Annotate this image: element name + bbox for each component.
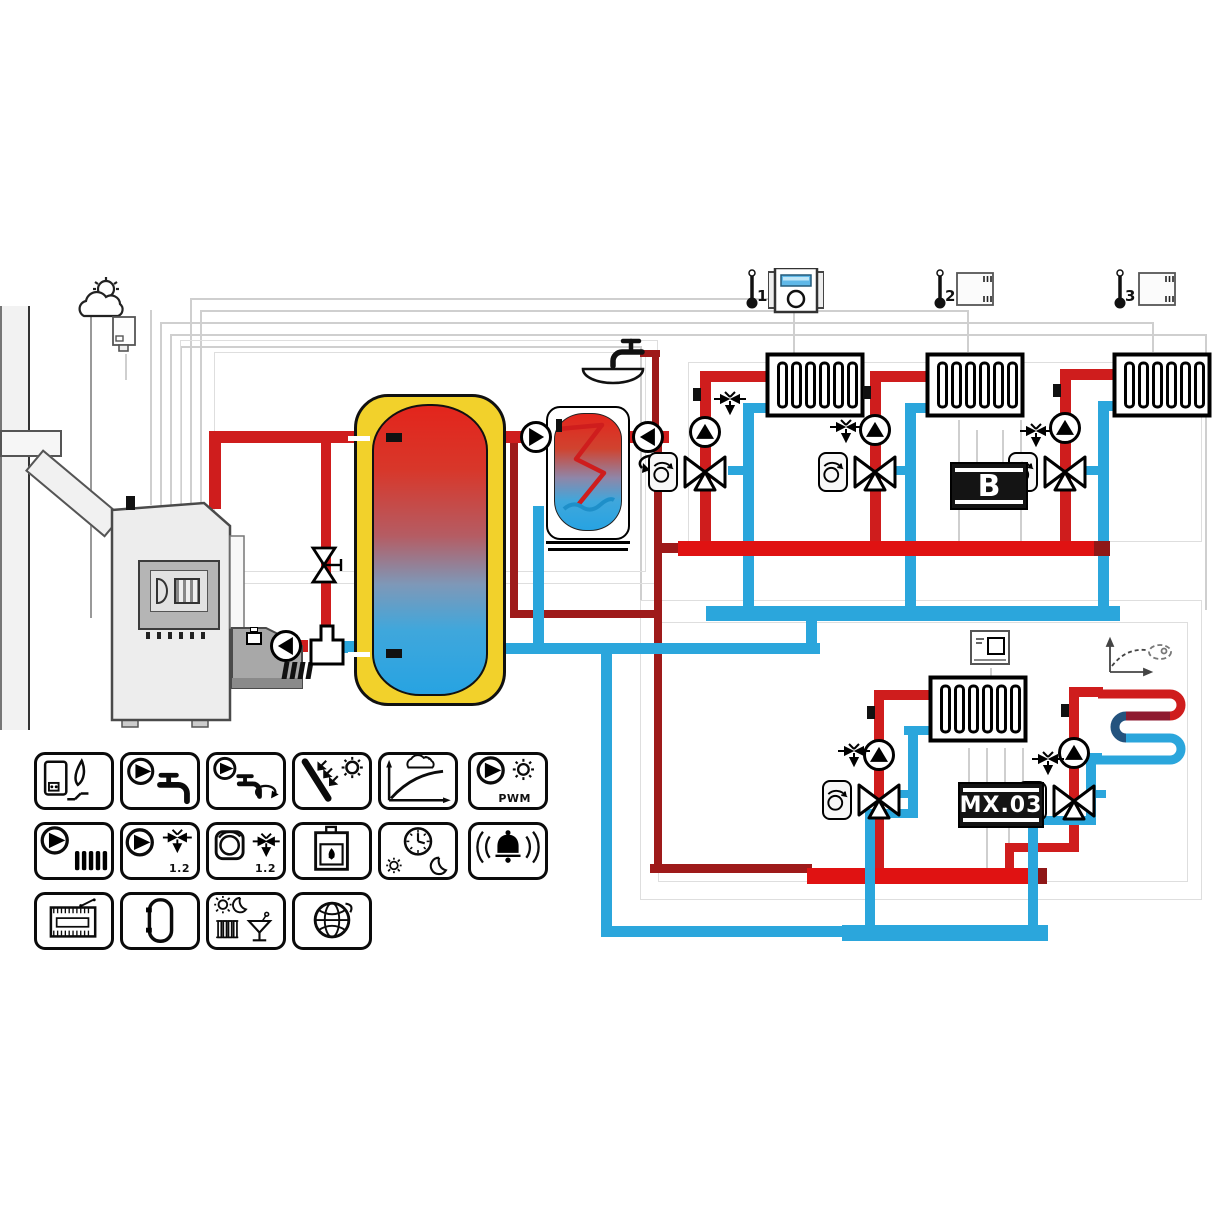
thermic-valve-tee xyxy=(303,618,345,666)
legend-storage-tank-icon[interactable] xyxy=(120,892,200,950)
legend-mixing-pump-icon[interactable]: 1.2 xyxy=(120,822,200,880)
wiring-line xyxy=(170,334,1205,336)
flue-duct-horizontal xyxy=(0,430,62,457)
hot-header-cap xyxy=(1094,541,1110,556)
wiring-line xyxy=(160,322,162,505)
cold-return-circuit4 xyxy=(865,809,875,929)
circuit1-mix-arrows-icon xyxy=(712,390,748,416)
hot-pipe-circuit4 xyxy=(874,690,934,700)
mixing-module-mx03[interactable]: MX.03 xyxy=(958,782,1044,828)
tank-sensor-nub xyxy=(386,433,402,442)
legend-pwm-label: PWM xyxy=(498,792,531,805)
radiator-circuit2 xyxy=(925,352,1025,418)
wiring-line xyxy=(200,310,967,312)
hot-pipe xyxy=(209,431,371,443)
tank-sensor-nub xyxy=(386,649,402,658)
legend-pwm-pump-icon[interactable]: PWM xyxy=(468,752,548,810)
legend-dhw-pump-icon[interactable] xyxy=(120,752,200,810)
cold-pipe xyxy=(601,650,612,934)
circuit4-actuator xyxy=(822,780,852,820)
legend-mixing-pump-label: 1.2 xyxy=(169,862,190,875)
legend-heating-pump-icon[interactable] xyxy=(34,822,114,880)
boiler-pump-icon xyxy=(270,630,302,662)
dhw-charge-pump-icon xyxy=(520,421,552,453)
shutoff-valve-icon xyxy=(310,544,346,586)
dhw-stand-line xyxy=(546,541,630,544)
legend-thermostat-valve-icon[interactable]: 1.2 xyxy=(206,822,286,880)
room-unit-1-label: 1 xyxy=(757,287,767,305)
circuit1-mixing-valve-icon xyxy=(682,452,728,492)
radiator-circuit1 xyxy=(765,352,865,418)
circuit1-actuator xyxy=(648,452,678,492)
boiler-terminals xyxy=(146,632,210,639)
module-stripe xyxy=(963,788,1039,792)
wiring-line xyxy=(190,298,793,300)
legend-heating-curve-icon[interactable] xyxy=(378,752,458,810)
pipe-sensor-nub xyxy=(863,386,871,399)
wall-edge-line xyxy=(90,308,92,618)
tank-port-notch xyxy=(348,652,370,657)
legend-alarm-icon[interactable] xyxy=(468,822,548,880)
outdoor-sensor-icon xyxy=(112,316,138,354)
pipe-sensor-nub xyxy=(693,388,701,401)
mixing-module-label: MX.03 xyxy=(960,793,1043,818)
cold-return-circuit3 xyxy=(1098,402,1109,616)
radiator-circuit4 xyxy=(928,675,1028,743)
hot-header-upper xyxy=(678,541,1108,556)
room-sensor-bottom-icon xyxy=(970,630,1012,668)
hot-pipe-circuit1 xyxy=(700,371,772,382)
room-controller-1[interactable] xyxy=(768,268,824,314)
circuit2-mixing-valve-icon xyxy=(852,452,898,492)
legend-thermostat-valve-label: 1.2 xyxy=(255,862,276,875)
module-stripe xyxy=(955,500,1023,504)
pipe-sensor-nub xyxy=(867,706,875,719)
legend-holiday-mode-icon[interactable] xyxy=(206,892,286,950)
legend-internet-icon[interactable] xyxy=(292,892,372,950)
circuit3-mix-arrows-icon xyxy=(1018,422,1054,448)
hot-pipe xyxy=(321,437,331,629)
cold-pipe xyxy=(498,643,820,654)
zone-module-label: B xyxy=(978,469,1001,504)
hot-supply-lower xyxy=(650,864,812,873)
hot-pipe-circuit3 xyxy=(1060,369,1118,380)
hot-pipe-circuit2 xyxy=(870,371,932,382)
dhw-circulation-pump-icon xyxy=(632,421,664,453)
dhw-coil xyxy=(554,413,622,531)
boiler-outlet-cap xyxy=(250,627,258,632)
wiring-line xyxy=(170,334,172,505)
legend-solar-collector-icon[interactable] xyxy=(292,752,372,810)
dhw-stand-line xyxy=(548,548,628,551)
zone-module-b[interactable]: B xyxy=(950,462,1028,510)
cold-return-circuit4 xyxy=(900,790,914,798)
floor-curve-icon xyxy=(1102,636,1178,680)
room-unit-2-label: 2 xyxy=(945,287,955,305)
cold-return-circuit1 xyxy=(743,404,754,616)
wiring-line xyxy=(967,310,969,352)
legend-dhw-circulation-icon[interactable] xyxy=(206,752,286,810)
room-sensor-3[interactable] xyxy=(1138,272,1178,308)
wiring-line xyxy=(125,354,127,380)
radiator-circuit3 xyxy=(1112,352,1212,418)
room-sensor-2[interactable] xyxy=(956,272,996,308)
boiler-sensor-nub xyxy=(126,496,135,510)
hot-return-pipe xyxy=(510,443,518,615)
cold-pipe xyxy=(601,926,849,937)
circuit5-mix-arrows-icon xyxy=(1030,750,1066,776)
dhw-sensor-nub xyxy=(556,419,562,432)
cold-return-circuit4 xyxy=(908,728,918,814)
circuit4-mixing-valve-icon xyxy=(856,780,902,820)
boiler-outlet-fitting xyxy=(246,632,262,645)
hot-header-lower xyxy=(807,868,1047,884)
chimney xyxy=(0,306,30,730)
tap-basin-icon xyxy=(578,336,662,394)
room-unit-3-label: 3 xyxy=(1125,287,1135,305)
circuit3-mixing-valve-icon xyxy=(1042,452,1088,492)
floor-heating-loop xyxy=(1096,680,1196,772)
module-stripe xyxy=(963,818,1039,822)
cold-return-circuit2 xyxy=(905,404,916,616)
pipe-sensor-nub xyxy=(1061,704,1069,717)
tank-port-notch xyxy=(348,436,370,441)
circuit2-actuator xyxy=(818,452,848,492)
circuit5-mixing-valve-icon xyxy=(1051,781,1097,821)
legend-fireplace-icon[interactable] xyxy=(292,822,372,880)
legend-terminal-module-icon[interactable] xyxy=(34,892,114,950)
pipe-sensor-nub xyxy=(1053,384,1061,397)
cold-pipe-dhw xyxy=(533,506,544,648)
hot-pipe-circuit5 xyxy=(1005,843,1079,852)
circuit4-mix-arrows-icon xyxy=(836,742,872,768)
legend-day-night-icon[interactable] xyxy=(378,822,458,880)
heating-schematic-canvas: B MX.03 1 2 xyxy=(0,0,1214,1214)
cold-return-circuit1 xyxy=(728,466,746,475)
wiring-line xyxy=(150,310,152,505)
hot-pipe-circuit5 xyxy=(1005,848,1014,870)
wiring-line xyxy=(160,322,1152,324)
circuit1-pump-icon xyxy=(689,416,721,448)
boiler-display-bars xyxy=(174,578,200,604)
cold-header-upper xyxy=(706,606,1120,621)
circuit2-mix-arrows-icon xyxy=(828,418,864,444)
legend-boiler-burner-icon[interactable] xyxy=(34,752,114,810)
module-stripe xyxy=(955,468,1023,472)
cold-return-circuit5 xyxy=(1028,816,1038,929)
wiring-line xyxy=(1152,322,1154,352)
